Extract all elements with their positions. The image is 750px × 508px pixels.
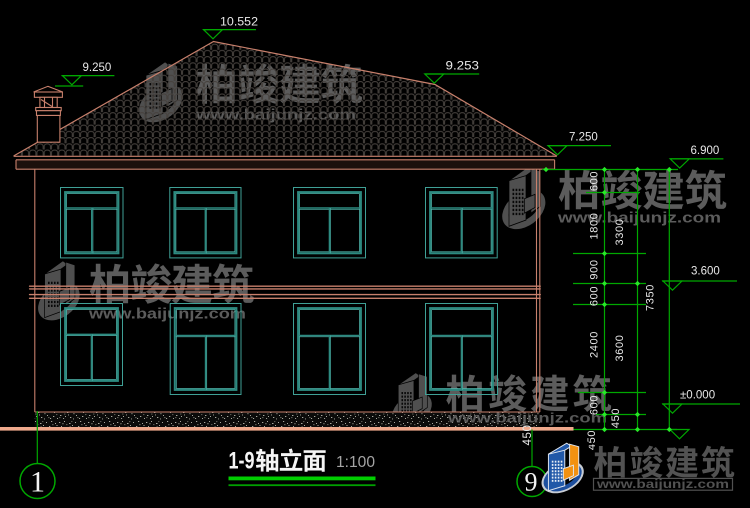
svg-text:1: 1 <box>30 466 45 499</box>
svg-text:7.250: 7.250 <box>569 132 598 144</box>
svg-text:1:100: 1:100 <box>336 454 375 471</box>
svg-text:10.552: 10.552 <box>220 17 258 29</box>
svg-text:www.baijunjz.com: www.baijunjz.com <box>557 210 721 227</box>
svg-text:3300: 3300 <box>614 219 626 246</box>
svg-text:www.baijunjz.com: www.baijunjz.com <box>447 410 607 426</box>
svg-text:7350: 7350 <box>645 284 657 311</box>
svg-text:600: 600 <box>589 286 601 306</box>
svg-text:9.250: 9.250 <box>83 62 112 74</box>
svg-text:3600: 3600 <box>614 335 626 362</box>
svg-text:1800: 1800 <box>589 213 601 240</box>
svg-text:6.900: 6.900 <box>691 145 720 157</box>
svg-text:9.253: 9.253 <box>446 61 480 73</box>
svg-text:2400: 2400 <box>589 331 601 358</box>
svg-text:3.600: 3.600 <box>691 266 720 278</box>
svg-text:600: 600 <box>589 171 601 191</box>
svg-text:±0.000: ±0.000 <box>680 390 715 402</box>
svg-text:www.baijunjz.com: www.baijunjz.com <box>596 479 729 491</box>
svg-text:600: 600 <box>589 395 601 415</box>
svg-text:9: 9 <box>525 468 538 497</box>
svg-text:450: 450 <box>610 408 622 428</box>
svg-text:900: 900 <box>589 259 601 279</box>
svg-text:1-9: 1-9 <box>229 448 255 475</box>
